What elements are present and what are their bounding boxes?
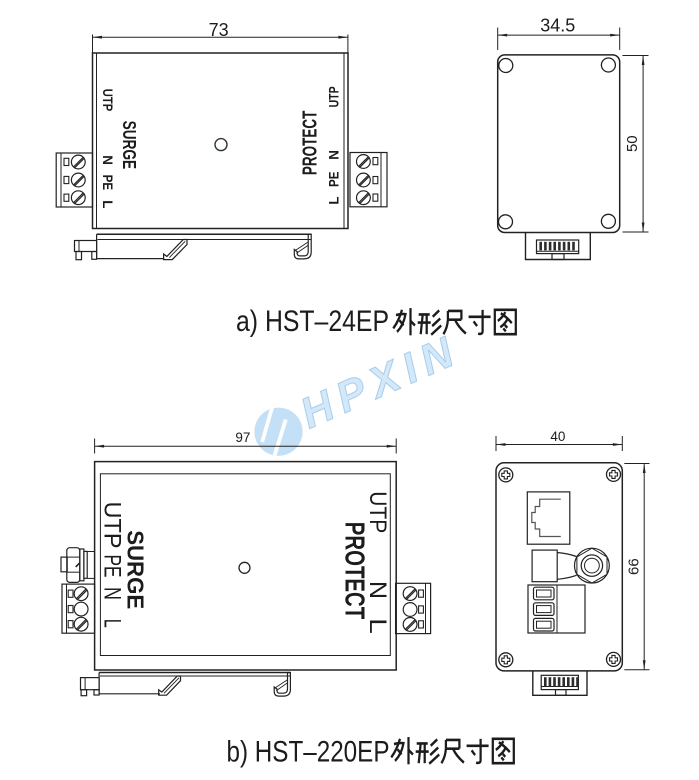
svg-text:a) HST–24EP: a) HST–24EP (236, 305, 389, 338)
svg-text:N: N (364, 581, 391, 599)
svg-text:PE: PE (326, 172, 341, 188)
svg-text:PE: PE (99, 555, 126, 578)
svg-text:L: L (99, 619, 126, 628)
svg-text:97: 97 (235, 430, 250, 445)
svg-text:N: N (326, 150, 341, 160)
svg-text:PROTECT: PROTECT (300, 111, 322, 176)
svg-text:UTP: UTP (99, 502, 126, 549)
svg-text:b) HST–220EP: b) HST–220EP (227, 736, 390, 769)
svg-text:UTP: UTP (326, 86, 341, 107)
svg-text:N: N (100, 155, 115, 165)
svg-text:UTP: UTP (100, 89, 115, 112)
svg-text:50: 50 (624, 135, 641, 152)
svg-text:N: N (99, 587, 126, 600)
svg-text:UTP: UTP (364, 491, 391, 533)
svg-text:L: L (364, 618, 391, 634)
svg-text:66: 66 (626, 558, 643, 575)
svg-text:34.5: 34.5 (540, 16, 575, 36)
svg-text:PE: PE (100, 175, 115, 191)
svg-text:40: 40 (550, 429, 565, 444)
svg-text:SURGE: SURGE (123, 530, 149, 609)
svg-text:L: L (326, 196, 341, 204)
svg-text:SURGE: SURGE (119, 121, 140, 170)
svg-text:L: L (100, 200, 115, 208)
svg-text:PROTECT: PROTECT (340, 522, 371, 620)
svg-text:73: 73 (209, 20, 229, 40)
